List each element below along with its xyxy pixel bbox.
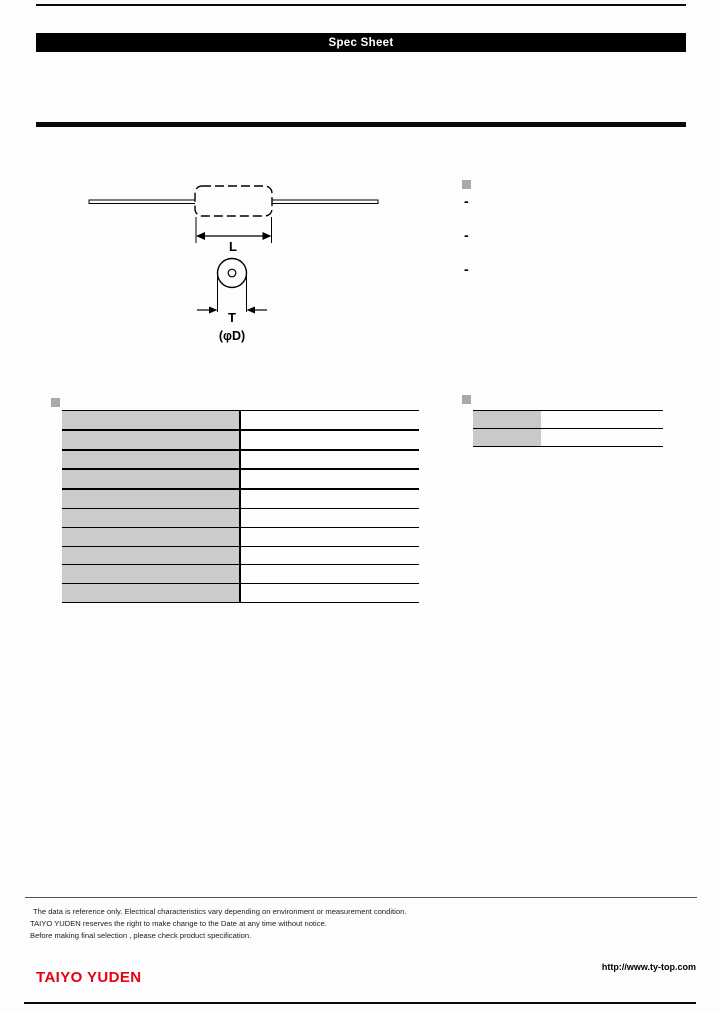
feature-dash: - — [464, 194, 469, 208]
company-url-link[interactable]: http://www.ty-top.com — [602, 962, 696, 972]
lead-cross-section-circle — [228, 269, 236, 277]
spec-table-section-bullet-icon — [51, 398, 60, 407]
component-body — [195, 186, 272, 216]
dimension-label-diameter: (φD) — [219, 329, 245, 343]
dimension-label-length: L — [229, 239, 237, 254]
row-label-cell — [62, 565, 239, 583]
row-value-cell — [239, 584, 419, 602]
row-value-cell — [239, 509, 419, 527]
row-value-cell — [239, 411, 419, 429]
row-label-cell — [62, 451, 239, 469]
row-label-cell — [62, 411, 239, 429]
spec-table-column-divider — [239, 411, 241, 602]
features-section-bullet-icon — [462, 180, 471, 189]
row-value-cell — [239, 451, 419, 469]
feature-dash: - — [464, 228, 469, 242]
disclaimer-notes: The data is reference only. Electrical c… — [30, 906, 490, 942]
bottom-rule — [24, 1002, 696, 1004]
header-divider-rule — [36, 122, 686, 127]
arrowhead-inward-right-icon — [209, 307, 218, 314]
row-label-cell — [62, 490, 239, 508]
feature-dash: - — [464, 262, 469, 276]
row-label-cell — [62, 547, 239, 565]
row-label-cell — [62, 584, 239, 602]
spec-sheet-page: Spec Sheet L T (φD) --- — [0, 0, 720, 1012]
table-row — [473, 429, 663, 446]
row-value-cell — [239, 431, 419, 449]
summary-table — [473, 410, 663, 447]
arrowhead-inward-left-icon — [247, 307, 256, 314]
row-value-cell — [239, 547, 419, 565]
top-rule — [36, 4, 686, 6]
summary-table-section-bullet-icon — [462, 395, 471, 404]
row-label-cell — [62, 431, 239, 449]
row-value-cell — [239, 565, 419, 583]
taiyo-yuden-logo: TAIYO YUDEN — [36, 969, 142, 986]
row-label-cell — [62, 470, 239, 488]
row-label-cell — [473, 429, 541, 446]
header-title-bar: Spec Sheet — [36, 33, 686, 52]
row-label-cell — [62, 528, 239, 546]
footer-divider-rule — [25, 897, 697, 898]
component-dimension-diagram: L T (φD) — [80, 170, 400, 355]
row-label-cell — [473, 411, 541, 428]
page-title: Spec Sheet — [329, 37, 394, 49]
row-value-cell — [239, 470, 419, 488]
disclaimer-line: The data is reference only. Electrical c… — [30, 906, 490, 918]
table-row — [473, 411, 663, 429]
specifications-table — [62, 410, 419, 603]
arrowhead-left-icon — [196, 232, 205, 240]
disclaimer-line: TAIYO YUDEN reserves the right to make c… — [30, 918, 490, 930]
row-label-cell — [62, 509, 239, 527]
row-value-cell — [239, 528, 419, 546]
disclaimer-line: Before making final selection , please c… — [30, 930, 490, 942]
dimension-label-thickness: T — [228, 310, 236, 325]
row-value-cell — [239, 490, 419, 508]
arrowhead-right-icon — [263, 232, 272, 240]
end-view-circle — [218, 259, 247, 288]
